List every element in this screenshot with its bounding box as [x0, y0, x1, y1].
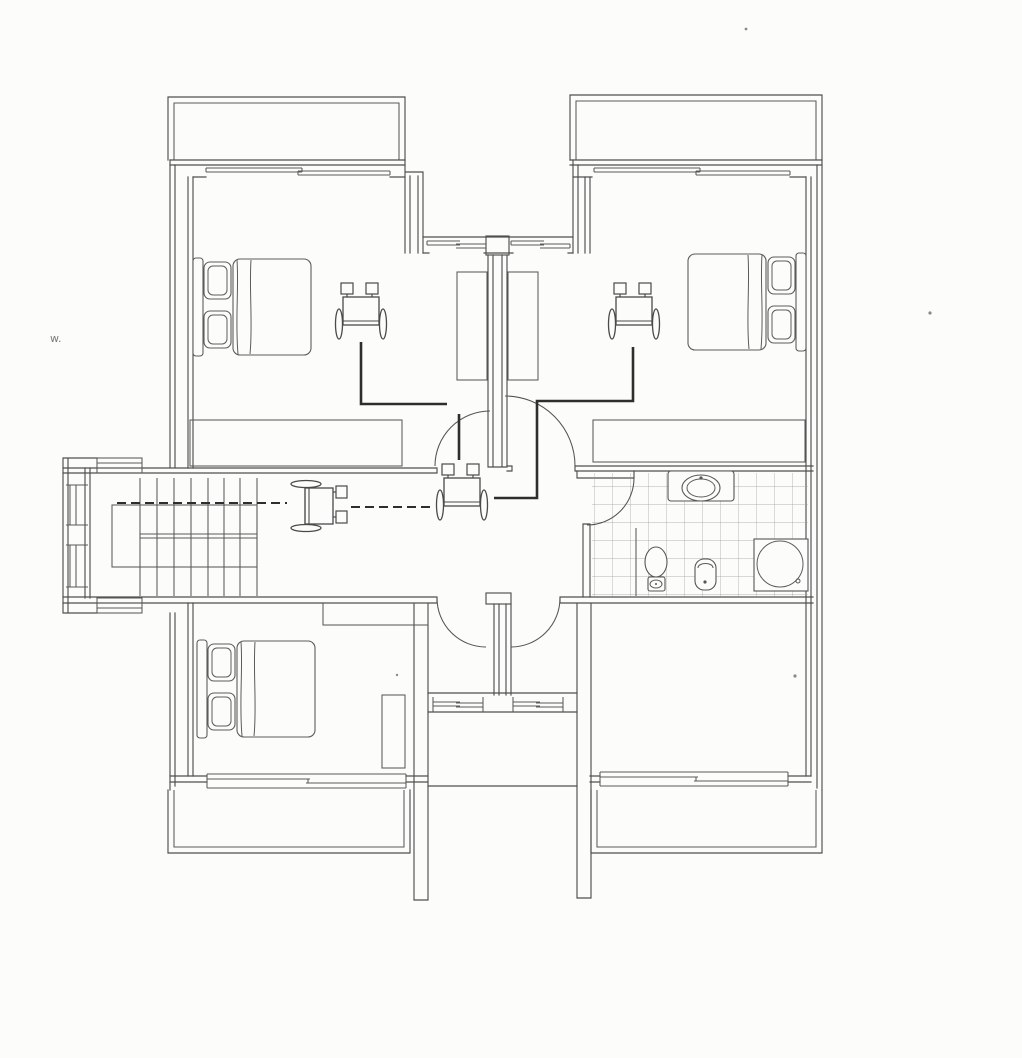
wheelchair-symbol-bedroom-left: [336, 283, 387, 339]
speck: [396, 674, 398, 676]
bidet: [695, 559, 716, 590]
window-top-left: [206, 168, 390, 175]
shelf-bottom-left: [382, 695, 405, 768]
window-bottom-right: [600, 772, 788, 786]
shower: [754, 539, 808, 591]
balcony-bottom-right: [591, 790, 822, 853]
window-top-right: [594, 168, 790, 175]
window-stair-bottom: [97, 598, 142, 613]
handwriting-mark: w.: [50, 332, 61, 345]
balcony-bottom-left: [168, 790, 410, 853]
floor-plan-svg: w.: [0, 0, 1022, 1058]
scanned-page: w.: [0, 0, 1022, 1058]
wardrobe-top-right-tall: [508, 272, 538, 380]
speck: [793, 674, 796, 677]
wardrobe-corridor-left: [190, 420, 402, 466]
wardrobe-corridor-right: [593, 420, 805, 462]
door-arc-bottom-left: [437, 598, 486, 647]
window-shaft-right: [513, 697, 563, 712]
speck: [928, 311, 931, 314]
wheelchair-symbol-bedroom-right: [609, 283, 660, 339]
washbasin: [668, 471, 734, 501]
wardrobe-bottom-left: [323, 603, 428, 625]
route-bedroom-top-left: [361, 342, 447, 404]
toilet: [645, 547, 667, 591]
speck: [745, 28, 748, 31]
stair-treads: [140, 478, 257, 596]
stair-rail: [140, 534, 257, 538]
bathroom: [592, 471, 808, 596]
staircase: [112, 478, 257, 596]
accessible-routes: [117, 342, 633, 507]
window-recess-left: [427, 241, 486, 248]
bed-top-left: [193, 258, 311, 356]
wardrobe-top-left-tall: [457, 272, 487, 380]
stair-void: [112, 505, 257, 567]
door-arc-bottom-right: [511, 598, 560, 647]
bed-top-right: [688, 253, 806, 351]
wheelchair-symbol-hall: [437, 464, 488, 520]
door-arc-bedroom-top-left: [435, 411, 490, 466]
door-arc-bedroom-top-right: [505, 396, 575, 466]
door-arcs: [435, 396, 634, 647]
wheelchair-symbol-stairs: [291, 481, 347, 532]
window-stair-top: [97, 458, 142, 473]
window-shaft-left: [433, 697, 483, 712]
window-recess-right: [511, 241, 570, 248]
window-bottom-left: [207, 774, 406, 788]
balcony-top-left: [168, 97, 405, 160]
bed-bottom-left: [197, 640, 315, 738]
balcony-top-right: [570, 95, 822, 160]
